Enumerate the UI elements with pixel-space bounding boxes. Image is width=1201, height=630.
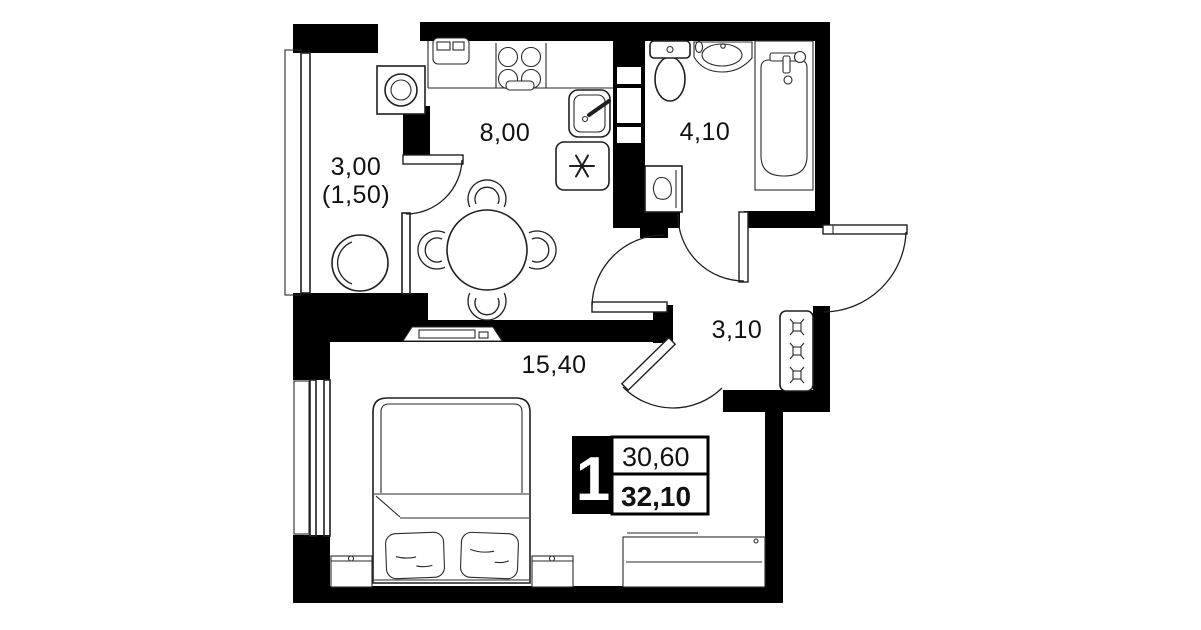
- ventilation-shaft-icon: [617, 67, 641, 143]
- hallway-area-label: 3,10: [712, 316, 763, 344]
- bathtub-icon: [755, 41, 813, 190]
- washing-machine-icon: [377, 66, 425, 114]
- kitchen-area-label: 8,00: [480, 119, 531, 147]
- kitchen-appliance-icon: [433, 38, 469, 64]
- room-count-value: 1: [576, 445, 610, 514]
- fridge-icon: [556, 142, 609, 190]
- bathroom-area-label: 4,10: [680, 118, 731, 146]
- total-area-value: 32,10: [621, 481, 691, 512]
- balcony-area-secondary-label: (1,50): [322, 181, 390, 209]
- kitchen-sink-icon: [569, 90, 610, 137]
- bathroom-washer-icon: [645, 166, 682, 212]
- balcony-area-label: 3,00: [331, 153, 382, 181]
- floor-plan-canvas: 3,00 (1,50) 8,00 4,10 3,10 15,40 1 30,60…: [0, 0, 1201, 630]
- living-area-value: 30,60: [622, 442, 690, 472]
- tv-stand-icon: [403, 327, 502, 341]
- wardrobe-icon: [780, 311, 813, 391]
- dresser-icon: [623, 533, 765, 587]
- living-room-area-label: 15,40: [521, 351, 586, 379]
- info-badge: 1 30,60 32,10: [572, 436, 708, 514]
